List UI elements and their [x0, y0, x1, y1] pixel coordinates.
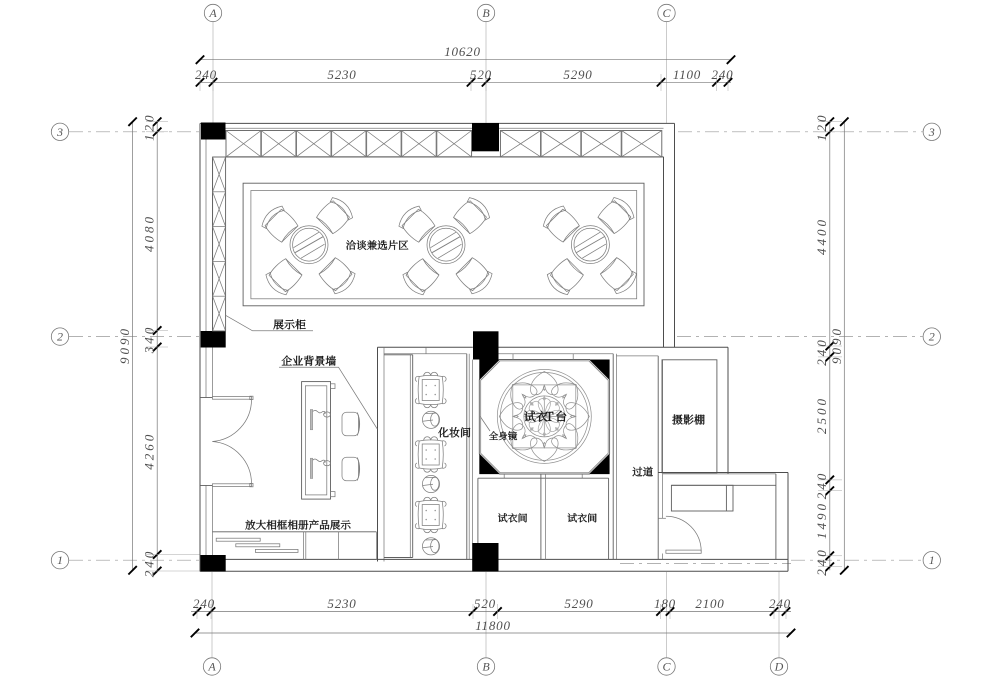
svg-text:120: 120: [142, 112, 157, 141]
svg-text:A: A: [208, 6, 217, 20]
svg-text:240: 240: [769, 596, 791, 611]
svg-text:2100: 2100: [695, 596, 724, 611]
svg-text:A: A: [207, 660, 216, 674]
svg-text:5290: 5290: [563, 67, 592, 82]
svg-text:9090: 9090: [829, 326, 844, 364]
svg-text:240: 240: [814, 547, 829, 576]
svg-text:5290: 5290: [564, 596, 593, 611]
svg-text:2: 2: [57, 330, 63, 344]
svg-text:240: 240: [193, 596, 215, 611]
svg-text:520: 520: [470, 67, 492, 82]
svg-text:340: 340: [142, 325, 157, 355]
svg-text:1100: 1100: [673, 67, 701, 82]
svg-text:240: 240: [195, 67, 217, 82]
svg-text:240: 240: [142, 549, 157, 578]
svg-text:240: 240: [814, 471, 829, 500]
svg-text:2: 2: [929, 330, 935, 344]
svg-text:2500: 2500: [814, 396, 829, 434]
svg-text:10620: 10620: [444, 44, 481, 59]
svg-text:5230: 5230: [327, 67, 356, 82]
svg-text:5230: 5230: [327, 596, 356, 611]
svg-text:520: 520: [474, 596, 496, 611]
svg-text:240: 240: [814, 337, 829, 366]
svg-text:C: C: [662, 660, 671, 674]
svg-text:D: D: [774, 660, 784, 674]
svg-text:11800: 11800: [475, 618, 511, 633]
svg-text:3: 3: [928, 125, 935, 139]
svg-text:4080: 4080: [142, 214, 157, 252]
svg-text:9090: 9090: [117, 326, 132, 364]
svg-text:1490: 1490: [814, 501, 829, 539]
svg-text:240: 240: [712, 67, 734, 82]
svg-text:4400: 4400: [814, 217, 829, 255]
svg-text:3: 3: [56, 125, 63, 139]
svg-text:120: 120: [814, 112, 829, 141]
svg-text:4260: 4260: [142, 432, 157, 470]
svg-text:1: 1: [57, 553, 63, 567]
svg-text:C: C: [662, 6, 671, 20]
svg-text:180: 180: [654, 596, 676, 611]
svg-text:B: B: [482, 660, 490, 674]
svg-text:1: 1: [929, 553, 935, 567]
svg-text:B: B: [482, 6, 490, 20]
